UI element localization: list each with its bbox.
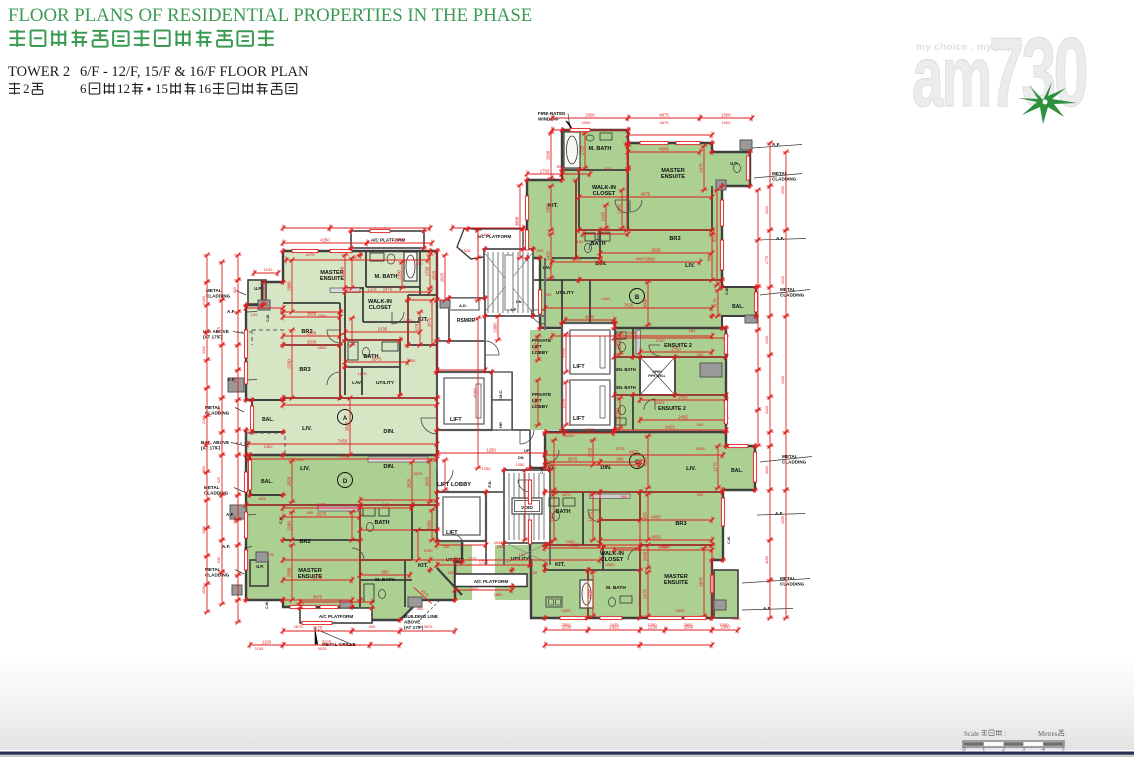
svg-text:BUILDING LINE: BUILDING LINE xyxy=(404,614,438,619)
svg-text:1500: 1500 xyxy=(202,586,206,594)
svg-text:5425: 5425 xyxy=(627,331,637,336)
svg-text:2425: 2425 xyxy=(546,251,551,261)
svg-text:2800: 2800 xyxy=(395,238,405,243)
svg-text:3025: 3025 xyxy=(322,640,332,645)
svg-text:2500: 2500 xyxy=(562,622,572,627)
svg-text:(AT 17/F): (AT 17/F) xyxy=(203,334,223,339)
svg-text:(AT 17/F): (AT 17/F) xyxy=(404,625,424,630)
svg-text:2150: 2150 xyxy=(287,359,292,369)
svg-text:1250: 1250 xyxy=(516,462,526,467)
svg-text:1750: 1750 xyxy=(425,266,430,276)
svg-text:1650: 1650 xyxy=(470,586,480,591)
svg-text:ENSUITE: ENSUITE xyxy=(661,174,686,180)
svg-text:900: 900 xyxy=(369,624,376,629)
svg-text:BAL.: BAL. xyxy=(732,304,744,310)
svg-text:2525: 2525 xyxy=(546,203,551,213)
svg-text:200: 200 xyxy=(697,492,704,497)
svg-text:RSMRR: RSMRR xyxy=(457,318,476,324)
svg-text:M. BATH: M. BATH xyxy=(589,146,612,152)
svg-text:200: 200 xyxy=(697,352,704,357)
svg-text:UP: UP xyxy=(511,308,517,312)
svg-text:A.F.: A.F. xyxy=(775,511,783,516)
svg-text:6/F - 12/F, 15/F & 16/F FLOOR: 6/F - 12/F, 15/F & 16/F FLOOR PLAN xyxy=(80,64,309,80)
svg-text:3675: 3675 xyxy=(424,624,434,629)
svg-text:LAV.: LAV. xyxy=(352,380,362,385)
svg-text:1250: 1250 xyxy=(482,466,492,471)
svg-text:2500: 2500 xyxy=(307,331,317,336)
svg-text:903: 903 xyxy=(545,292,552,297)
svg-text:120: 120 xyxy=(251,312,258,317)
svg-text:2625: 2625 xyxy=(676,608,686,613)
svg-text:5425: 5425 xyxy=(665,425,675,430)
svg-text:2700: 2700 xyxy=(601,229,611,234)
svg-text:M. BATH: M. BATH xyxy=(375,274,398,280)
svg-text:BR3: BR3 xyxy=(299,367,310,373)
svg-text:2950: 2950 xyxy=(781,186,785,194)
svg-text:DN: DN xyxy=(516,300,522,304)
svg-text:4875: 4875 xyxy=(660,120,670,125)
svg-text:D: D xyxy=(343,479,348,485)
svg-text:2675: 2675 xyxy=(313,575,323,580)
svg-text:4675: 4675 xyxy=(641,192,651,197)
svg-text:5: 5 xyxy=(1061,746,1064,753)
svg-text:C.W.: C.W. xyxy=(727,536,731,544)
svg-text:A/C PLATFORM: A/C PLATFORM xyxy=(319,614,354,619)
svg-text:2450: 2450 xyxy=(561,348,566,358)
svg-text:6: 6 xyxy=(80,81,87,96)
svg-text:1400: 1400 xyxy=(202,296,206,304)
svg-text:CLOSET: CLOSET xyxy=(593,191,616,197)
svg-text:KIT.: KIT. xyxy=(555,562,565,568)
svg-text:2825: 2825 xyxy=(407,478,412,488)
svg-text:1050: 1050 xyxy=(781,516,785,524)
svg-text:7450: 7450 xyxy=(338,439,348,444)
svg-text:150: 150 xyxy=(443,544,450,549)
svg-text:CLADDING: CLADDING xyxy=(780,292,805,297)
svg-text:1150: 1150 xyxy=(765,556,769,564)
svg-text:1875: 1875 xyxy=(562,492,572,497)
svg-text:2775: 2775 xyxy=(765,256,769,264)
svg-text:1950: 1950 xyxy=(546,150,551,160)
svg-text:2750: 2750 xyxy=(671,347,681,352)
svg-text:1600: 1600 xyxy=(533,397,538,407)
svg-text:ENSUITE 2: ENSUITE 2 xyxy=(658,406,686,412)
svg-text:3300: 3300 xyxy=(202,346,206,354)
svg-text:4200: 4200 xyxy=(585,315,595,320)
svg-text:VOID: VOID xyxy=(521,505,533,511)
svg-text:C.W.: C.W. xyxy=(265,601,269,609)
svg-text:2475: 2475 xyxy=(699,163,704,173)
svg-text:1175: 1175 xyxy=(713,462,718,472)
svg-text:4100: 4100 xyxy=(473,388,478,398)
svg-text:BAL.: BAL. xyxy=(261,479,273,485)
svg-text:2325: 2325 xyxy=(566,539,576,544)
svg-text:1725: 1725 xyxy=(468,556,478,561)
svg-text:EN. BATH: EN. BATH xyxy=(616,385,635,390)
svg-text:C.W.: C.W. xyxy=(266,314,270,322)
svg-text:UTILITY: UTILITY xyxy=(556,290,575,296)
svg-text:2000: 2000 xyxy=(582,120,592,125)
svg-text:WALK-IN: WALK-IN xyxy=(368,299,392,305)
svg-text:4000: 4000 xyxy=(643,298,648,308)
svg-text:PRIVATE: PRIVATE xyxy=(532,338,551,343)
svg-text:2825: 2825 xyxy=(287,476,292,486)
svg-text:TOWER 2: TOWER 2 xyxy=(8,64,70,80)
svg-text:3: 3 xyxy=(1022,746,1025,753)
svg-text:LIV.: LIV. xyxy=(686,466,696,472)
svg-text:3625: 3625 xyxy=(651,535,661,540)
svg-text:2100: 2100 xyxy=(287,521,292,531)
svg-text:3675: 3675 xyxy=(568,457,578,462)
svg-text:100: 100 xyxy=(689,328,696,333)
svg-text:650: 650 xyxy=(233,287,237,293)
svg-text:875: 875 xyxy=(605,166,612,171)
svg-text:DIN.: DIN. xyxy=(600,465,612,471)
svg-text:DN: DN xyxy=(518,456,524,460)
svg-text:BATH: BATH xyxy=(374,520,389,526)
svg-text:HR: HR xyxy=(498,422,503,428)
svg-text:CLADDING: CLADDING xyxy=(772,176,797,181)
svg-text:1950: 1950 xyxy=(202,466,206,474)
svg-text:1528: 1528 xyxy=(462,248,472,253)
svg-text:BR2: BR2 xyxy=(299,539,310,545)
svg-text:1875: 1875 xyxy=(372,357,382,362)
svg-text:1875: 1875 xyxy=(358,371,368,376)
svg-text:EN. BATH: EN. BATH xyxy=(616,367,635,372)
svg-text:3725: 3725 xyxy=(588,447,593,457)
svg-text:15: 15 xyxy=(155,81,168,96)
svg-text:1875: 1875 xyxy=(549,512,554,522)
svg-text:2425: 2425 xyxy=(678,415,688,420)
svg-text:KIT.: KIT. xyxy=(418,563,428,569)
svg-text:3600: 3600 xyxy=(645,257,655,262)
svg-text:1725: 1725 xyxy=(580,145,585,155)
svg-text:900: 900 xyxy=(307,510,314,515)
svg-text:150: 150 xyxy=(531,570,538,575)
svg-text:2425: 2425 xyxy=(656,400,666,405)
svg-text:2800: 2800 xyxy=(684,622,694,627)
svg-text:2450: 2450 xyxy=(615,339,620,349)
svg-text:7450: 7450 xyxy=(296,457,306,462)
svg-text:CLADDING: CLADDING xyxy=(780,581,805,586)
svg-text:LAV.: LAV. xyxy=(543,265,552,270)
svg-text:3675: 3675 xyxy=(313,595,323,600)
svg-text:4000: 4000 xyxy=(696,446,706,451)
svg-text:PIPE WELL: PIPE WELL xyxy=(648,374,665,378)
svg-text:1475: 1475 xyxy=(368,287,378,292)
svg-text:A: A xyxy=(343,416,348,422)
svg-text:1050: 1050 xyxy=(202,526,206,534)
svg-text:am: am xyxy=(912,29,990,125)
svg-text:LIFT: LIFT xyxy=(450,417,462,423)
svg-text:2675: 2675 xyxy=(294,624,304,629)
svg-text:DIN.: DIN. xyxy=(383,464,395,470)
svg-text:M. BATH: M. BATH xyxy=(606,585,626,591)
svg-text:2425: 2425 xyxy=(610,622,620,627)
svg-text:1650: 1650 xyxy=(448,570,458,575)
svg-text:LIV.: LIV. xyxy=(685,263,695,269)
svg-text:METAL: METAL xyxy=(204,485,220,490)
svg-text:LIV.: LIV. xyxy=(302,426,312,432)
svg-text:MASTER: MASTER xyxy=(664,574,688,580)
svg-text:U.P.: U.P. xyxy=(254,286,262,291)
svg-text:4600: 4600 xyxy=(659,147,669,152)
svg-text:200: 200 xyxy=(697,422,704,427)
svg-text:1600: 1600 xyxy=(493,323,498,333)
svg-text:0: 0 xyxy=(962,746,965,753)
svg-text:2675: 2675 xyxy=(643,589,648,599)
svg-text:ABOVE: ABOVE xyxy=(404,619,420,624)
svg-text:A.F.: A.F. xyxy=(776,236,784,241)
svg-text:375: 375 xyxy=(217,327,221,333)
svg-text:1825: 1825 xyxy=(440,272,445,282)
svg-text:4200: 4200 xyxy=(566,433,576,438)
svg-text:16: 16 xyxy=(198,81,212,96)
svg-text:850: 850 xyxy=(557,164,564,169)
svg-text:LIFT: LIFT xyxy=(573,364,585,370)
svg-text:2500: 2500 xyxy=(318,313,328,318)
svg-text:UP: UP xyxy=(524,449,530,453)
svg-text:2135: 2135 xyxy=(378,327,388,332)
svg-text:3020: 3020 xyxy=(765,466,769,474)
svg-text:3675: 3675 xyxy=(414,471,424,476)
svg-text:1250: 1250 xyxy=(486,448,496,453)
svg-text:3135: 3135 xyxy=(781,376,785,384)
svg-text:3350: 3350 xyxy=(606,562,616,567)
svg-text:2350: 2350 xyxy=(561,398,566,408)
svg-text:4050: 4050 xyxy=(651,515,661,520)
svg-text:830: 830 xyxy=(217,557,221,563)
svg-text:625: 625 xyxy=(217,477,221,483)
svg-text:900: 900 xyxy=(621,494,628,499)
svg-text:8675: 8675 xyxy=(629,450,639,455)
svg-text:2500: 2500 xyxy=(307,340,317,345)
svg-text:2575: 2575 xyxy=(317,512,327,517)
svg-text:1750: 1750 xyxy=(540,169,550,174)
svg-text:3120: 3120 xyxy=(765,406,769,414)
svg-text:7450: 7450 xyxy=(338,454,348,459)
svg-text:3675: 3675 xyxy=(296,601,306,606)
svg-text:900: 900 xyxy=(409,358,416,363)
svg-text:900: 900 xyxy=(381,570,389,575)
svg-text:1000: 1000 xyxy=(722,120,732,125)
svg-text:1950: 1950 xyxy=(233,516,237,524)
svg-text:CLADDING: CLADDING xyxy=(206,293,231,298)
svg-text:4000: 4000 xyxy=(643,457,648,467)
svg-text:2500: 2500 xyxy=(287,567,292,577)
svg-text:2350: 2350 xyxy=(615,408,620,418)
svg-text:2825: 2825 xyxy=(345,421,350,431)
svg-text:WALK-IN: WALK-IN xyxy=(592,185,616,191)
svg-text:1190: 1190 xyxy=(264,267,273,272)
svg-text:730: 730 xyxy=(989,19,1086,127)
svg-text:1475: 1475 xyxy=(588,512,593,522)
svg-text:1050: 1050 xyxy=(424,548,434,553)
svg-text:METAL: METAL xyxy=(206,288,222,293)
svg-text:A/C PLATFORM: A/C PLATFORM xyxy=(474,579,509,584)
svg-text:1825: 1825 xyxy=(432,270,437,280)
svg-text:1150: 1150 xyxy=(262,640,272,645)
svg-text:3675: 3675 xyxy=(313,626,323,631)
svg-text:2325: 2325 xyxy=(601,211,606,221)
svg-text:WINDOW: WINDOW xyxy=(538,116,559,121)
svg-text:150: 150 xyxy=(519,552,526,557)
svg-text:2000: 2000 xyxy=(585,113,595,118)
svg-text:375: 375 xyxy=(233,377,237,383)
svg-text:(AT 17/F): (AT 17/F) xyxy=(201,445,221,450)
svg-text:3000: 3000 xyxy=(707,252,712,262)
svg-text:2800: 2800 xyxy=(287,281,292,291)
svg-text:3025: 3025 xyxy=(318,646,328,651)
svg-text:MASTER: MASTER xyxy=(298,568,322,574)
svg-text:1350: 1350 xyxy=(264,444,274,449)
svg-text:A.D.: A.D. xyxy=(459,303,467,308)
svg-text:3600: 3600 xyxy=(636,256,646,261)
svg-text:4200: 4200 xyxy=(585,428,595,433)
svg-text:LIV.: LIV. xyxy=(300,466,310,472)
svg-text:3625: 3625 xyxy=(651,248,661,253)
svg-text:1: 1 xyxy=(982,746,985,753)
svg-text:2875: 2875 xyxy=(699,577,704,587)
svg-text:C.W.: C.W. xyxy=(725,287,729,295)
svg-text:BAL.: BAL. xyxy=(262,417,274,423)
svg-text:M. BATH: M. BATH xyxy=(375,577,395,583)
svg-text:A.F.: A.F. xyxy=(222,544,230,549)
svg-text:B: B xyxy=(635,295,640,301)
svg-text:DIN.: DIN. xyxy=(383,429,395,435)
svg-text:ENSUITE: ENSUITE xyxy=(664,580,689,586)
svg-text:4050: 4050 xyxy=(662,544,672,549)
svg-text:1175: 1175 xyxy=(713,298,718,308)
svg-text:3135: 3135 xyxy=(765,336,769,344)
svg-text:3223: 3223 xyxy=(765,206,769,214)
svg-text:BR3: BR3 xyxy=(669,236,680,242)
svg-text:1475: 1475 xyxy=(383,287,393,292)
svg-text:1675: 1675 xyxy=(415,323,420,333)
svg-text:1000: 1000 xyxy=(721,113,731,118)
svg-text:1080: 1080 xyxy=(732,616,742,621)
svg-text:UTILITY: UTILITY xyxy=(376,380,395,386)
svg-text:3535: 3535 xyxy=(494,540,504,545)
svg-text:MASTER: MASTER xyxy=(661,168,685,174)
svg-text:PRIVATE: PRIVATE xyxy=(532,392,551,397)
svg-text:P.D.: P.D. xyxy=(487,480,492,487)
svg-text:2150: 2150 xyxy=(217,406,221,414)
svg-text:900: 900 xyxy=(616,457,624,462)
svg-text:3220: 3220 xyxy=(781,276,785,284)
svg-text:3350: 3350 xyxy=(643,551,648,561)
svg-text:4075: 4075 xyxy=(306,252,316,257)
svg-text:1350: 1350 xyxy=(340,266,345,276)
svg-text:FLOOR PLANS OF RESIDENTIAL PRO: FLOOR PLANS OF RESIDENTIAL PROPERTIES IN… xyxy=(8,5,532,26)
svg-text:1500: 1500 xyxy=(482,232,492,237)
svg-text::: : xyxy=(1004,731,1006,738)
svg-text:12: 12 xyxy=(117,81,130,96)
svg-text:3200: 3200 xyxy=(427,520,432,530)
svg-text:2: 2 xyxy=(1002,746,1005,753)
svg-text:2350: 2350 xyxy=(617,204,622,214)
svg-text:4875: 4875 xyxy=(659,113,669,118)
svg-text:1525: 1525 xyxy=(562,608,572,613)
svg-text:CLOSET: CLOSET xyxy=(369,305,392,311)
svg-text:903: 903 xyxy=(537,248,544,253)
svg-text:625: 625 xyxy=(259,496,266,501)
svg-text:LIFT: LIFT xyxy=(573,416,585,422)
svg-text:1250: 1250 xyxy=(648,622,658,627)
svg-text:400: 400 xyxy=(417,606,424,611)
svg-text:1500: 1500 xyxy=(602,296,612,301)
svg-text:A.F.: A.F. xyxy=(227,309,235,314)
svg-text:1850: 1850 xyxy=(494,592,504,597)
svg-text:2825: 2825 xyxy=(425,476,430,486)
svg-text:1350: 1350 xyxy=(397,270,402,280)
svg-text:BAL.: BAL. xyxy=(731,468,743,474)
svg-text:Metres: Metres xyxy=(1038,730,1058,738)
svg-text:2750: 2750 xyxy=(656,338,666,343)
svg-text:875: 875 xyxy=(267,552,274,557)
svg-text:4250: 4250 xyxy=(320,238,330,243)
svg-text:CLADDING: CLADDING xyxy=(205,572,230,577)
svg-text:1150: 1150 xyxy=(255,646,264,651)
svg-text:1675: 1675 xyxy=(427,317,432,327)
svg-text:3800: 3800 xyxy=(515,216,520,226)
svg-text:150: 150 xyxy=(577,239,584,244)
svg-text:1350: 1350 xyxy=(414,261,424,266)
svg-text:2500: 2500 xyxy=(318,345,328,350)
svg-text:1000: 1000 xyxy=(720,622,730,627)
svg-text:7425: 7425 xyxy=(624,303,634,308)
svg-text:BR3: BR3 xyxy=(675,521,686,527)
svg-text:3725: 3725 xyxy=(616,446,626,451)
svg-text:2: 2 xyxy=(23,81,30,96)
svg-text:1675: 1675 xyxy=(404,318,414,323)
svg-text:2150: 2150 xyxy=(202,416,206,424)
svg-text:Scale: Scale xyxy=(964,730,979,738)
svg-text:U.P.: U.P. xyxy=(256,564,264,569)
svg-text:1600: 1600 xyxy=(533,343,538,353)
